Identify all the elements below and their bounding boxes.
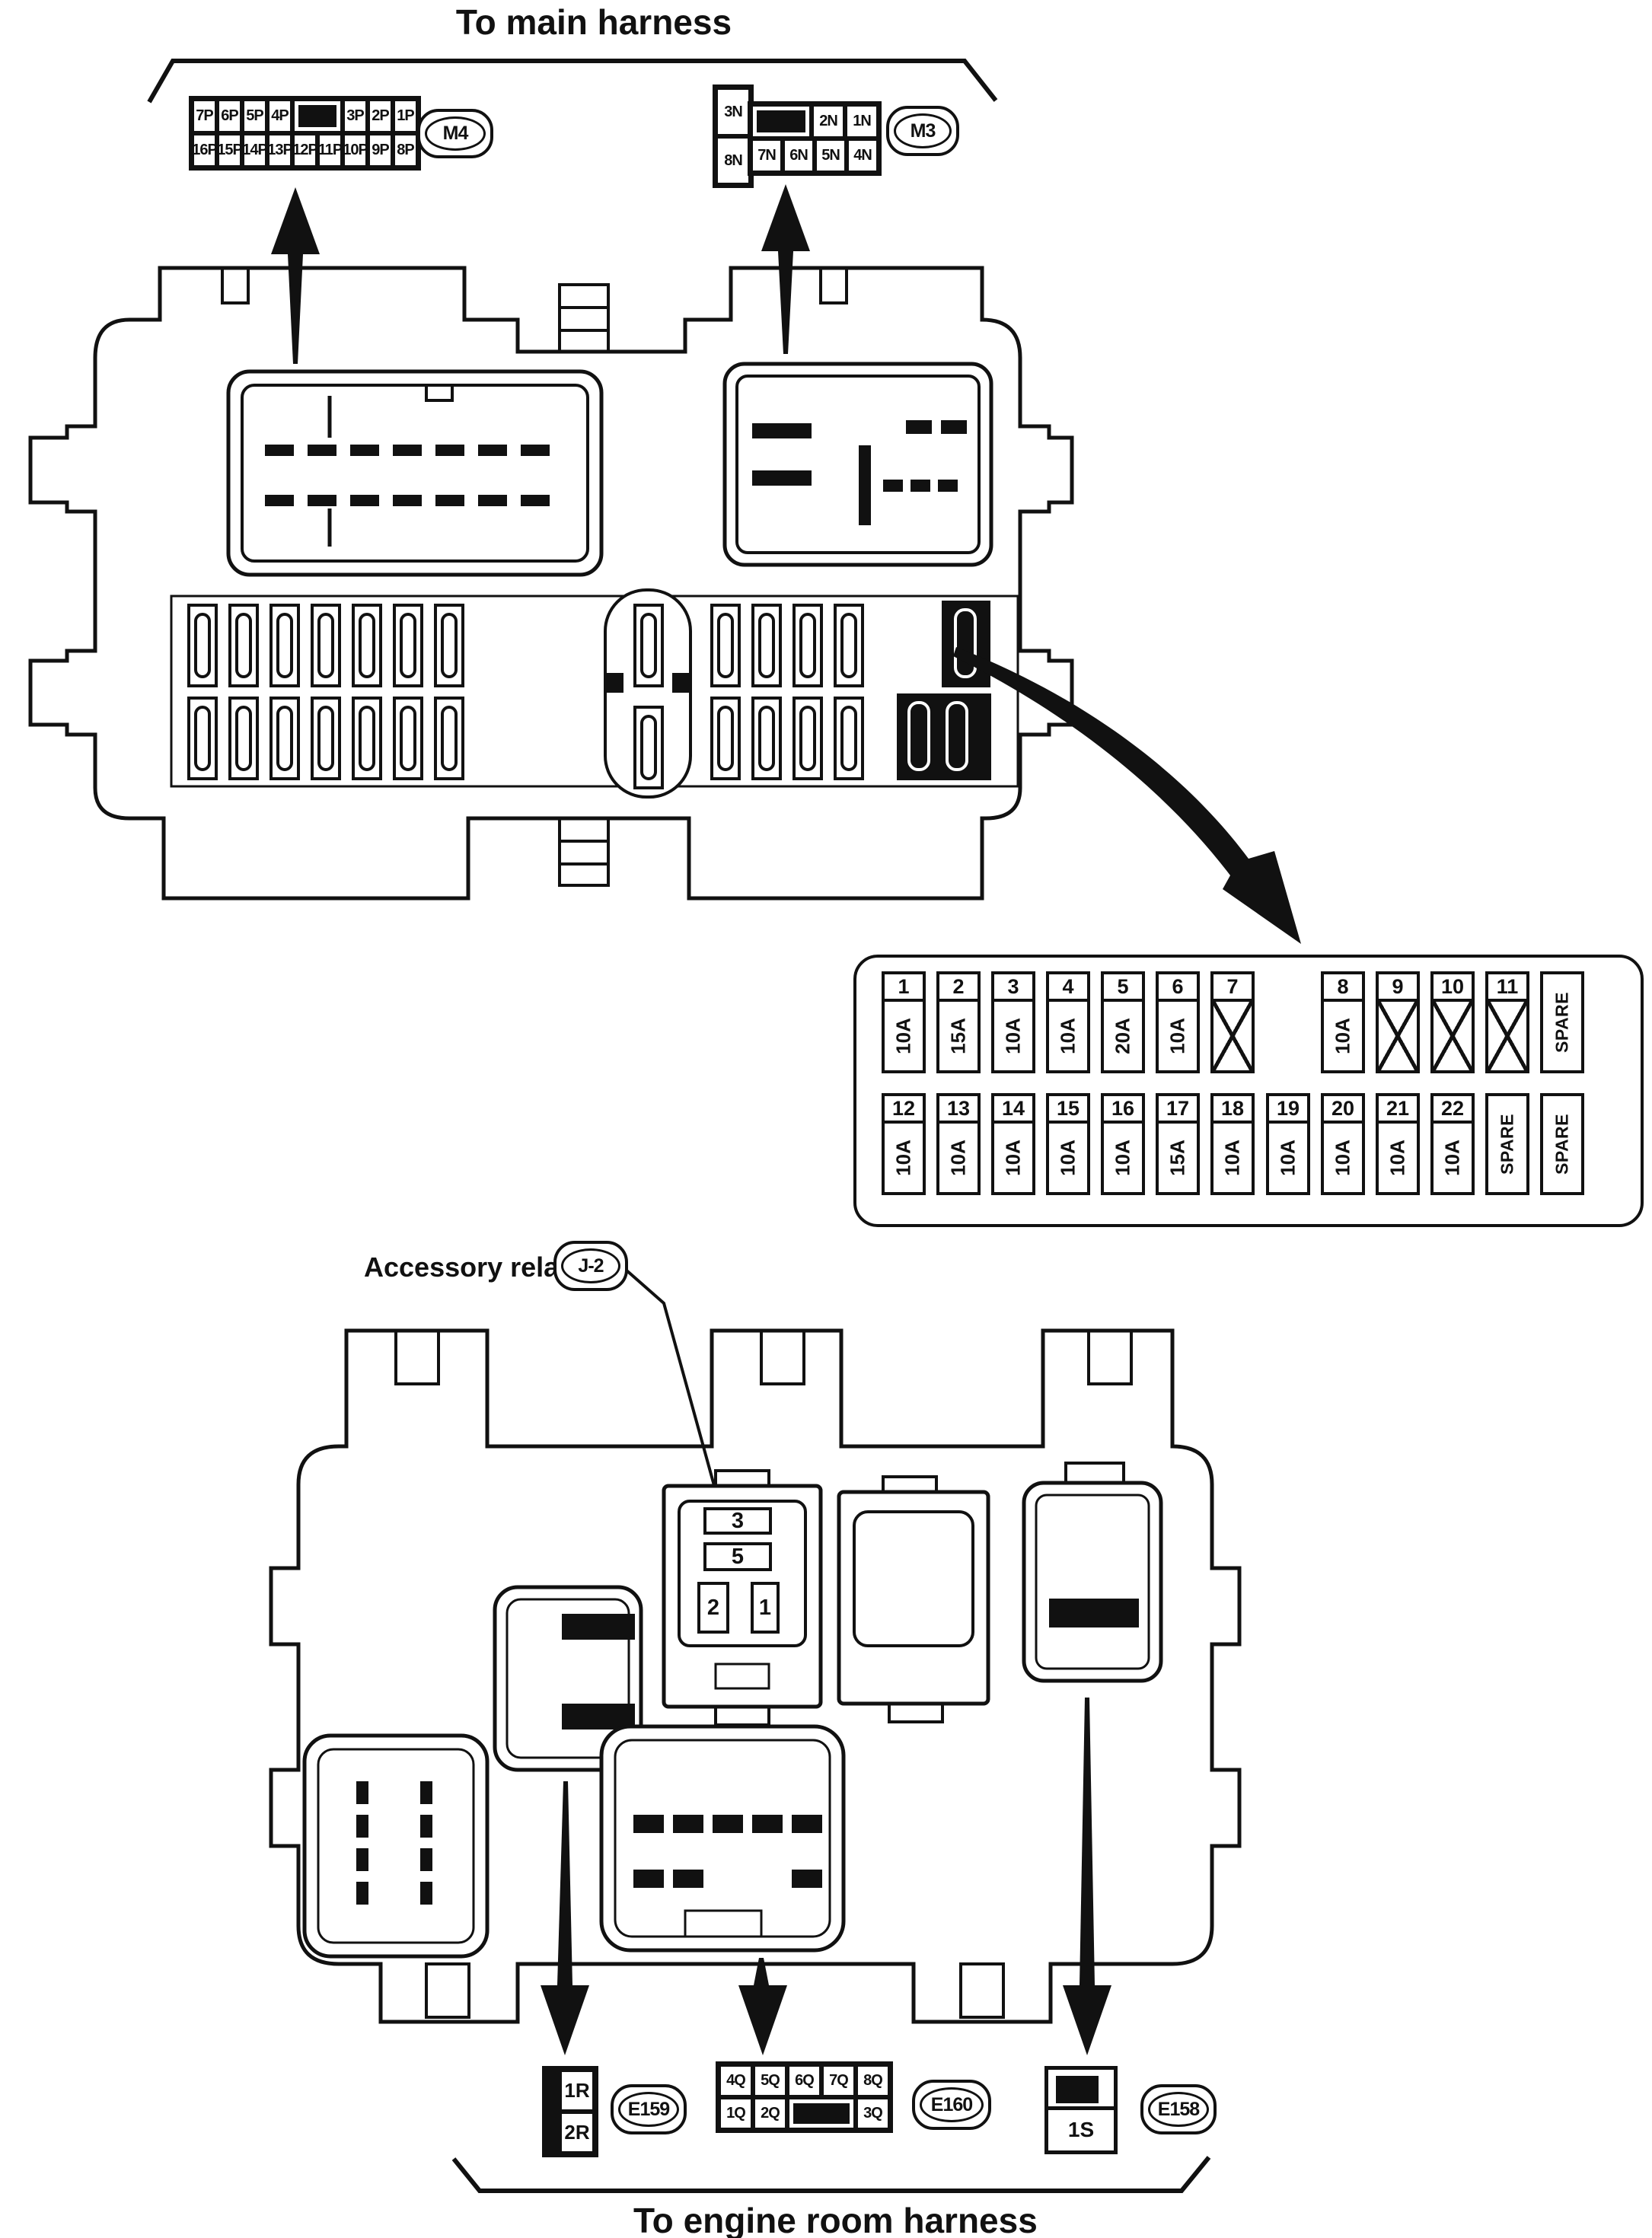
down-arrow-center bbox=[738, 1958, 787, 2055]
relay-socket-empty bbox=[839, 1477, 988, 1722]
fuse-cell-22: 22 10A bbox=[1430, 1093, 1475, 1195]
pin-10p: 10P bbox=[343, 133, 368, 167]
fuse-slot-field bbox=[171, 590, 1018, 797]
fuse-cell-4: 4 10A bbox=[1046, 971, 1090, 1073]
fuse-cell-19: 19 10A bbox=[1266, 1093, 1310, 1195]
pin-7p: 7P bbox=[192, 99, 217, 133]
relay-terminal-5: 5 bbox=[703, 1542, 772, 1571]
fuse-cell-15: 15 10A bbox=[1046, 1093, 1090, 1195]
connector-tag-e160: E160 bbox=[912, 2080, 991, 2130]
pin-4n: 4N bbox=[847, 139, 879, 173]
fuse-table-row1-right: 8 10A 9 10 11 SPARE bbox=[1321, 971, 1584, 1073]
pin-1p: 1P bbox=[393, 99, 418, 133]
pin-14p: 14P bbox=[242, 133, 267, 167]
fuse-cell-8: 8 10A bbox=[1321, 971, 1365, 1073]
m4-receptacle bbox=[228, 371, 601, 575]
pin-11p: 11P bbox=[317, 133, 343, 167]
fuse-cell-1: 1 10A bbox=[882, 971, 926, 1073]
connector-tag-m3: M3 bbox=[886, 106, 959, 156]
pin-13p: 13P bbox=[267, 133, 292, 167]
m3-receptacle bbox=[725, 364, 991, 565]
fuse-cell-3: 3 10A bbox=[991, 971, 1035, 1073]
e158-keyway bbox=[1056, 2076, 1099, 2103]
engine-harness-bracket bbox=[454, 2157, 1209, 2191]
fuse-cell-17: 17 15A bbox=[1156, 1093, 1200, 1195]
pin-2n: 2N bbox=[812, 104, 845, 139]
pin-8q: 8Q bbox=[856, 2064, 890, 2097]
fusebox-diagram-page: To main harness 7P 6P 5P 4P 3P 2P 1P 16P… bbox=[0, 0, 1652, 2238]
fuse-cell-16: 16 10A bbox=[1101, 1093, 1145, 1195]
connector-e158: 1S bbox=[1044, 2066, 1118, 2154]
pin-8p: 8P bbox=[393, 133, 418, 167]
pin-7n: 7N bbox=[751, 139, 783, 173]
pin-1s: 1S bbox=[1048, 2106, 1114, 2150]
up-arrow-left bbox=[271, 187, 320, 364]
pin-1q: 1Q bbox=[719, 2097, 753, 2130]
fuse-cell-12: 12 10A bbox=[882, 1093, 926, 1195]
pin-6q: 6Q bbox=[787, 2064, 821, 2097]
down-arrow-right bbox=[1063, 1698, 1111, 2055]
accessory-relay-label: Accessory relay bbox=[364, 1251, 574, 1283]
connector-grid-m3: 2N 1N 7N 6N 5N 4N bbox=[748, 101, 882, 176]
pin-2r: 2R bbox=[560, 2112, 595, 2154]
fuse-cell-spare-bottom-1: SPARE bbox=[1485, 1093, 1529, 1195]
fuse-cell-2: 2 15A bbox=[936, 971, 981, 1073]
connector-tag-j2: J-2 bbox=[553, 1241, 628, 1291]
fuse-cell-5: 5 20A bbox=[1101, 971, 1145, 1073]
fuse-cell-14: 14 10A bbox=[991, 1093, 1035, 1195]
pin-2q: 2Q bbox=[753, 2097, 787, 2130]
fuse-table-row2-mid: 19 10A bbox=[1266, 1093, 1310, 1195]
fuse-cell-21: 21 10A bbox=[1376, 1093, 1420, 1195]
relay-terminal-2: 2 bbox=[697, 1582, 729, 1634]
fuse-cell-6: 6 10A bbox=[1156, 971, 1200, 1073]
connector-tag-e158: E158 bbox=[1140, 2084, 1217, 2134]
pin-blank-e160 bbox=[787, 2097, 856, 2130]
pin-5q: 5Q bbox=[753, 2064, 787, 2097]
fuse-cell-spare-top: SPARE bbox=[1540, 971, 1584, 1073]
pin-6p: 6P bbox=[217, 99, 242, 133]
pin-16p: 16P bbox=[192, 133, 217, 167]
fuse-cell-18: 18 10A bbox=[1210, 1093, 1255, 1195]
connector-e159: 1R 2R bbox=[542, 2066, 598, 2157]
lower-bl-connector bbox=[305, 1736, 487, 1956]
pin-8n: 8N bbox=[716, 136, 751, 185]
pin-4q: 4Q bbox=[719, 2064, 753, 2097]
e159-keyway bbox=[546, 2070, 560, 2154]
pin-9p: 9P bbox=[368, 133, 393, 167]
s-connector bbox=[1024, 1463, 1161, 1681]
pin-2p: 2P bbox=[368, 99, 393, 133]
pin-blank-m4 bbox=[292, 99, 343, 133]
fuse-table-row2-left: 12 10A 13 10A 14 10A 15 10A 16 10A 17 15… bbox=[882, 1093, 1255, 1195]
pin-15p: 15P bbox=[217, 133, 242, 167]
pin-1r: 1R bbox=[560, 2070, 595, 2112]
lower-bc-connector bbox=[601, 1726, 844, 1950]
fuse-cell-7: 7 bbox=[1210, 971, 1255, 1073]
connector-e160: 4Q 5Q 6Q 7Q 8Q 1Q 2Q 3Q bbox=[716, 2061, 893, 2133]
fuse-table-row2-right: 20 10A 21 10A 22 10A SPARE SPARE bbox=[1321, 1093, 1584, 1195]
pin-1n: 1N bbox=[845, 104, 879, 139]
pin-6n: 6N bbox=[783, 139, 815, 173]
main-harness-title: To main harness bbox=[403, 2, 784, 43]
fuse-cell-20: 20 10A bbox=[1321, 1093, 1365, 1195]
pin-blank-m3 bbox=[751, 104, 812, 139]
pin-3q: 3Q bbox=[856, 2097, 890, 2130]
pin-5n: 5N bbox=[815, 139, 847, 173]
fuse-cell-spare-bottom-2: SPARE bbox=[1540, 1093, 1584, 1195]
fuse-cell-13: 13 10A bbox=[936, 1093, 981, 1195]
relay-terminal-1: 1 bbox=[751, 1582, 780, 1634]
relay-terminal-3: 3 bbox=[703, 1507, 772, 1535]
pin-3p: 3P bbox=[343, 99, 368, 133]
pin-5p: 5P bbox=[242, 99, 267, 133]
fuse-cell-11: 11 bbox=[1485, 971, 1529, 1073]
pin-3n: 3N bbox=[716, 88, 751, 136]
engine-harness-title: To engine room harness bbox=[633, 2200, 1014, 2238]
pin-4p: 4P bbox=[267, 99, 292, 133]
fuse-table-row1-left: 1 10A 2 15A 3 10A 4 10A 5 20A 6 10A 7 bbox=[882, 971, 1255, 1073]
e158-keyway-cell bbox=[1048, 2070, 1114, 2106]
fuse-cell-9: 9 bbox=[1376, 971, 1420, 1073]
down-arrow-left bbox=[541, 1781, 589, 2055]
connector-tag-m4: M4 bbox=[417, 109, 493, 158]
pin-12p: 12P bbox=[292, 133, 317, 167]
fuse-cell-10: 10 bbox=[1430, 971, 1475, 1073]
connector-grid-m4: 7P 6P 5P 4P 3P 2P 1P 16P 15P 14P 13P 12P… bbox=[189, 96, 421, 171]
connector-tag-e159: E159 bbox=[611, 2084, 687, 2134]
curved-arrow-to-fuse-table bbox=[953, 647, 1301, 944]
pin-7q: 7Q bbox=[821, 2064, 856, 2097]
